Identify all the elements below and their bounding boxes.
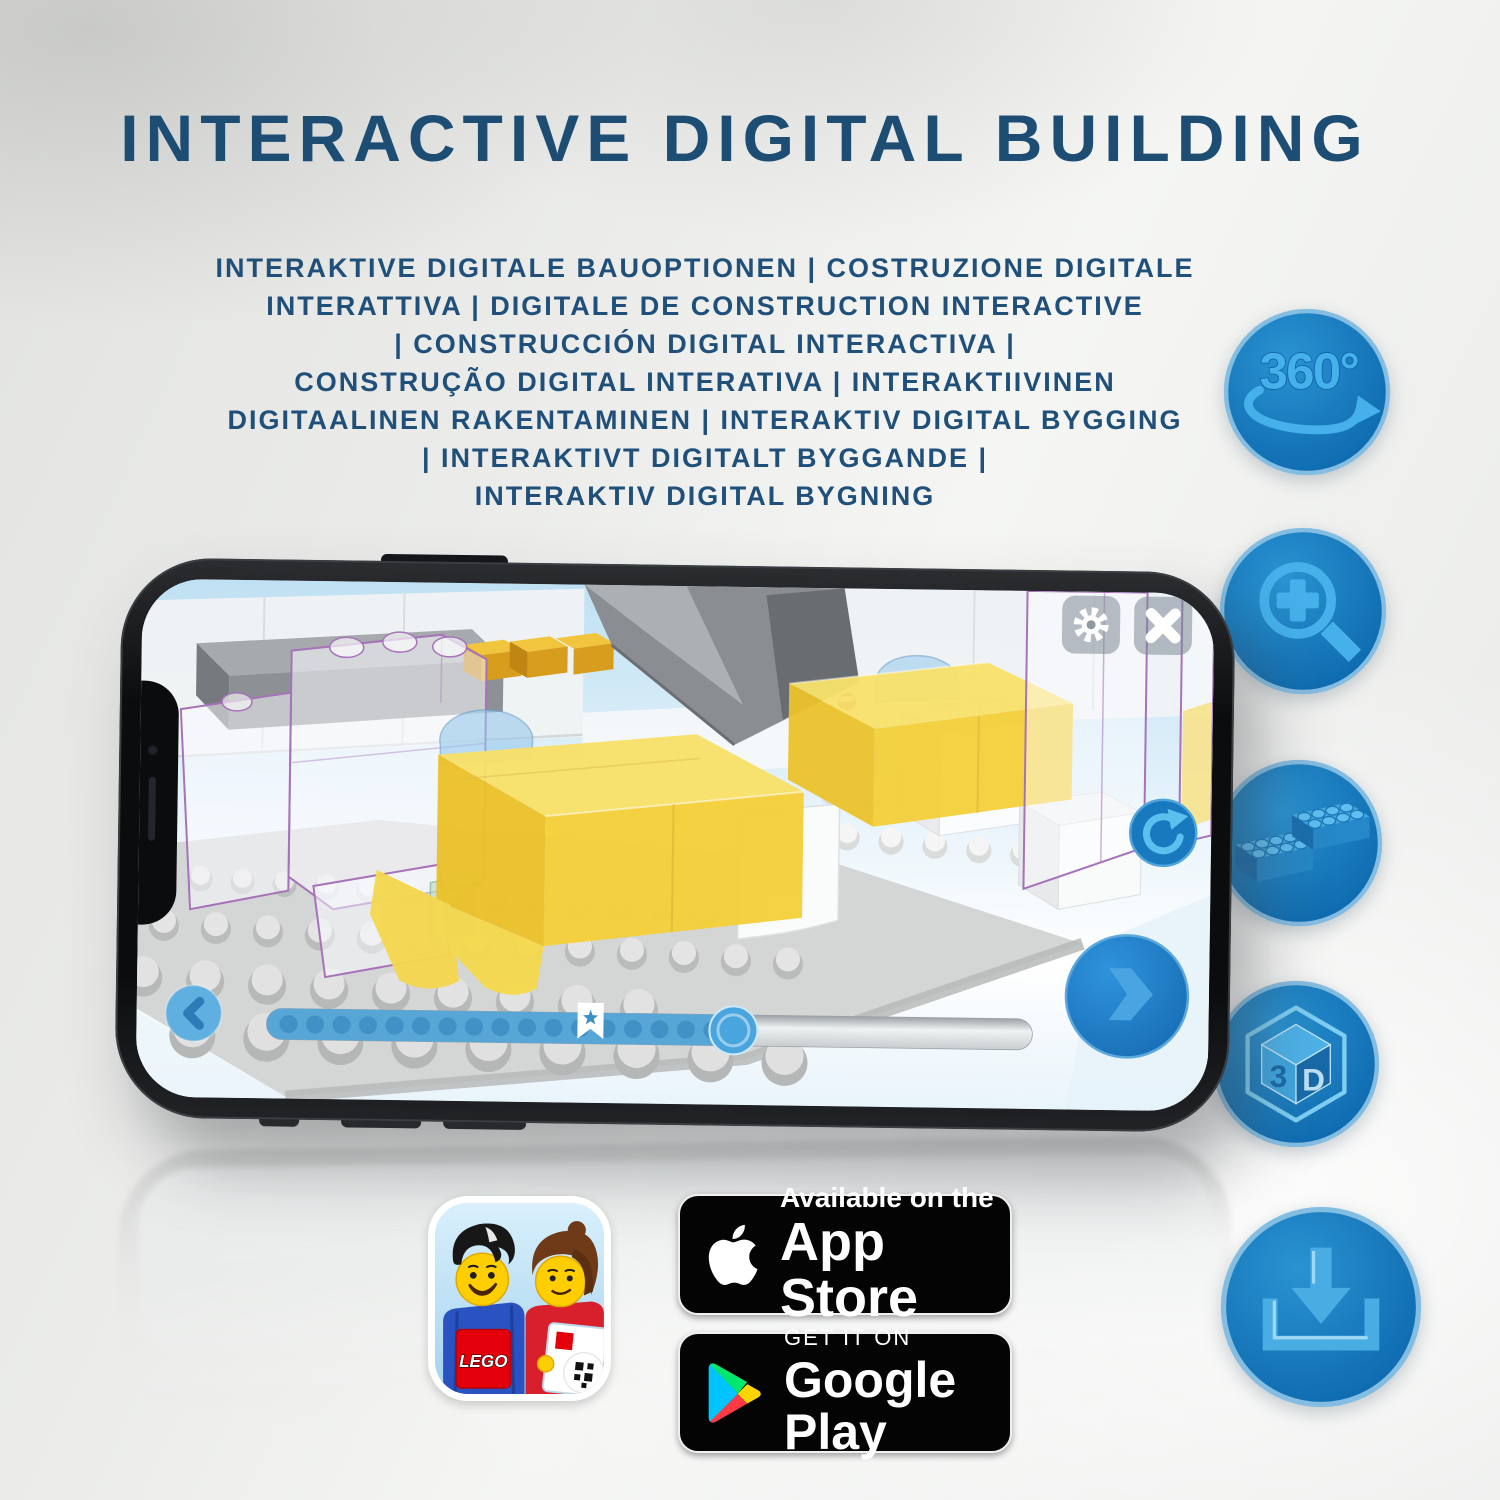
feature-icon-zoom [1215, 523, 1391, 699]
app-store-tagline: Available on the [780, 1183, 1010, 1212]
google-play-badge[interactable]: GET IT ON Google Play [678, 1332, 1012, 1453]
front-camera [147, 745, 158, 756]
subtitle-line: DIGITAALINEN RAKENTAMINEN | INTERAKTIV D… [30, 401, 1380, 439]
feature-icon-download [1215, 1201, 1427, 1413]
apple-logo-icon [706, 1224, 758, 1286]
subtitle-line: INTERAKTIV DIGITAL BYGNING [30, 477, 1380, 515]
feature-icon-360-rotation: 360° [1219, 304, 1395, 480]
minifig-girl [526, 1221, 604, 1394]
progress-handle[interactable] [709, 1006, 758, 1055]
feature-icon-3d-view: 3 D [1208, 976, 1384, 1152]
app-store-name: App Store [780, 1214, 1010, 1326]
lego-app-icon[interactable]: LEGO [428, 1196, 611, 1401]
lego-logo-text: LEGO [459, 1352, 507, 1371]
subtitle-line: | CONSTRUCCIÓN DIGITAL INTERACTIVA | [30, 325, 1380, 363]
subtitle-line: INTERATTIVA | DIGITALE DE CONSTRUCTION I… [30, 287, 1380, 325]
app-store-badge[interactable]: Available on the App Store [678, 1194, 1012, 1315]
feature-icon-bricks [1211, 755, 1387, 931]
360-degree-label: 360° [1260, 342, 1359, 399]
phone-screen [135, 579, 1214, 1112]
lego-build-viewport[interactable] [135, 579, 1214, 1112]
subtitle-line: | INTERAKTIVT DIGITALT BYGGANDE | [30, 439, 1380, 477]
page-title: INTERACTIVE DIGITAL BUILDING [0, 100, 1490, 176]
subtitle-multilingual: INTERAKTIVE DIGITALE BAUOPTIONEN | COSTR… [30, 249, 1380, 515]
subtitle-line: INTERAKTIVE DIGITALE BAUOPTIONEN | COSTR… [30, 249, 1380, 287]
google-play-tagline: GET IT ON [784, 1327, 1010, 1350]
face-label-3: 3 [1270, 1058, 1288, 1094]
subtitle-line: CONSTRUÇÃO DIGITAL INTERATIVA | INTERAKT… [30, 363, 1380, 401]
google-play-name: Google Play [784, 1354, 1010, 1458]
smartphone [114, 557, 1236, 1132]
face-label-d: D [1302, 1061, 1325, 1097]
phone-notch [136, 681, 179, 926]
marketing-panel: INTERACTIVE DIGITAL BUILDING INTERAKTIVE… [0, 0, 1500, 1500]
reset-rotation-button[interactable] [1130, 799, 1197, 866]
earpiece-speaker [148, 777, 156, 841]
phone-reflection [116, 1135, 1234, 1421]
google-play-logo-icon [706, 1362, 762, 1424]
